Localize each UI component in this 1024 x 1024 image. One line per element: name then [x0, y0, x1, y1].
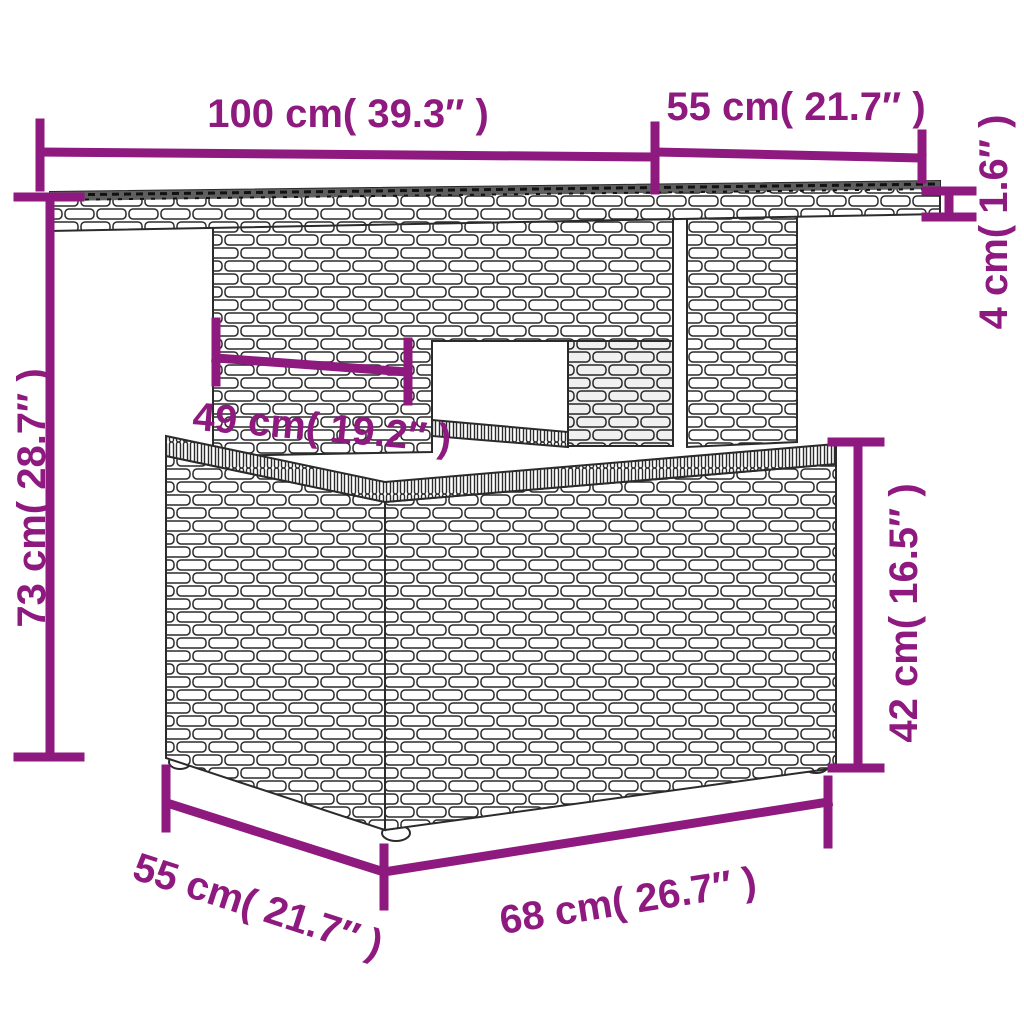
table-back-panel-shade: [568, 330, 673, 446]
dimension-label-top-thickness: 4 cm( 1.6″ ): [974, 115, 1014, 330]
base-left-face: [166, 456, 385, 830]
dimension-label-base-height: 42 cm( 16.5″ ): [884, 483, 924, 742]
base-right-face: [385, 464, 836, 830]
pedestal-column-right: [687, 215, 797, 447]
dimension-diagram: 100 cm( 39.3″ ) 55 cm( 21.7″ ) 4 cm( 1.6…: [0, 0, 1024, 1024]
dimension-label-overall-height: 73 cm( 28.7″ ): [12, 368, 52, 627]
table-drawing: [50, 181, 940, 841]
dimension-label-top-depth: 55 cm( 21.7″ ): [666, 87, 925, 127]
dim-line-top-depth: [655, 152, 922, 158]
dimension-label-top-width: 100 cm( 39.3″ ): [207, 94, 489, 134]
dim-line-top-width: [40, 152, 655, 157]
